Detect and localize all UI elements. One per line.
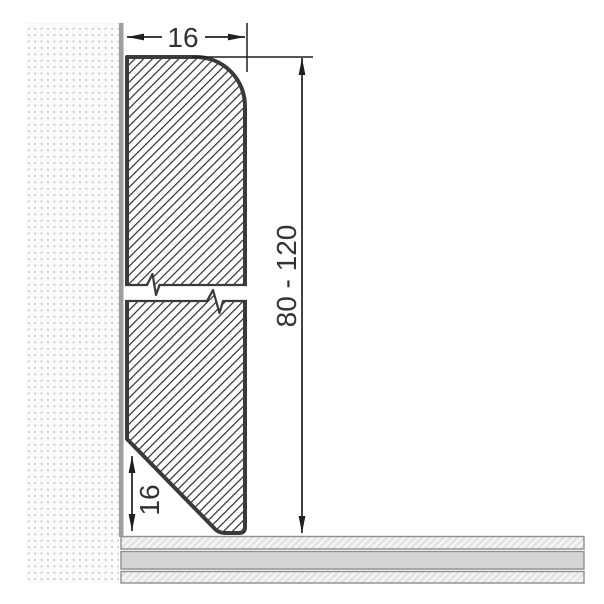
floor-top-layer xyxy=(121,537,584,550)
width-dimension-label: 16 xyxy=(167,22,198,53)
skirting-profile-drawing: 16 80 - 120 16 xyxy=(0,0,604,604)
floor-bottom-layer xyxy=(121,572,584,584)
height-dimension-label: 80 - 120 xyxy=(271,225,302,328)
technical-drawing-page: 16 80 - 120 16 xyxy=(0,0,604,604)
floor-section xyxy=(121,537,584,584)
chamfer-dimension-label: 16 xyxy=(134,484,165,515)
floor-middle-layer xyxy=(121,552,584,570)
wall-edge-line xyxy=(119,23,124,537)
profile-upper-hatch xyxy=(127,57,245,295)
wall-section xyxy=(27,23,119,583)
